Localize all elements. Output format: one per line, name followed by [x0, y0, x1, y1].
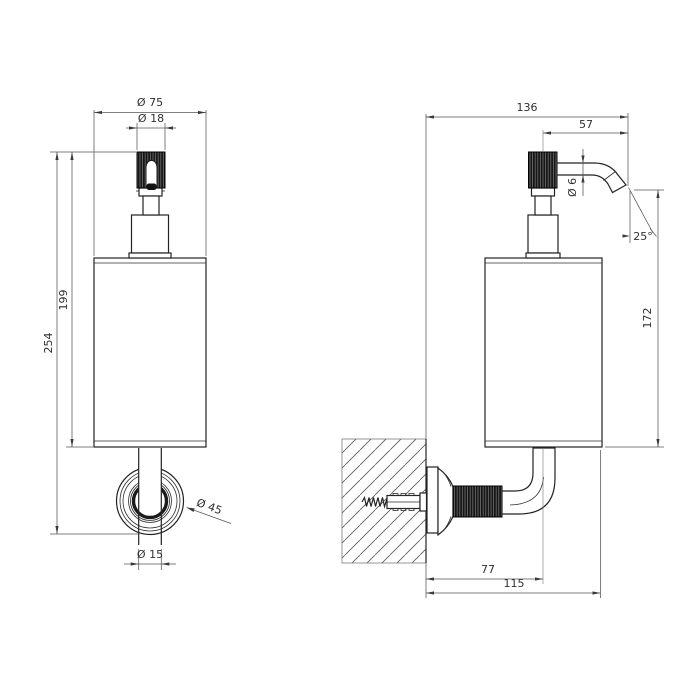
pump-collar-side [528, 215, 558, 253]
side-view: 136 57 Ø 6 25° [342, 101, 664, 598]
pump-neck [143, 196, 159, 215]
dispenser-body-side [485, 258, 602, 447]
dim-height-spout-to-base: 172 [605, 190, 664, 447]
dim-label-spout-projection: 57 [579, 118, 593, 131]
dim-spout-projection: 57 [543, 118, 628, 151]
front-view: Ø 75 Ø 18 254 199 [42, 96, 231, 570]
dim-wall-to-body-front: 115 [426, 450, 601, 598]
technical-drawing: Ø 75 Ø 18 254 199 [0, 0, 700, 700]
dim-label-supply-tube-diameter: Ø 15 [137, 548, 163, 561]
dispenser-body-front [94, 258, 206, 447]
dim-wall-flange-diameter: Ø 45 [187, 496, 232, 523]
dim-body-height: 199 [57, 152, 93, 447]
dim-label-77: 77 [481, 563, 495, 576]
dim-label-body-height: 199 [57, 290, 70, 311]
dim-label-115: 115 [504, 577, 525, 590]
supply-tube-mask [139, 450, 162, 499]
mount-bell [438, 468, 453, 535]
elbow-supply-tube [502, 448, 555, 514]
mount-knurled-ring [453, 486, 502, 517]
spout-outlet [147, 184, 157, 191]
dim-label-body-diameter: Ø 75 [137, 96, 163, 109]
pump-collar-flange-side [526, 253, 560, 258]
drawing-sheet: Ø 75 Ø 18 254 199 [0, 0, 700, 700]
pump-neck-upper-side [532, 188, 555, 196]
pump-neck-side [535, 196, 551, 215]
dim-label-wall-flange-diameter: Ø 45 [195, 496, 224, 517]
dim-pump-knob-diameter: Ø 18 [126, 112, 176, 150]
dim-label-spout-angle: 25° [633, 230, 653, 243]
pump-knob-side [529, 152, 558, 188]
dim-label-height-172: 172 [641, 308, 654, 329]
dim-label-overall-depth: 136 [517, 101, 538, 114]
anchor-flange [420, 493, 427, 511]
dim-label-pump-knob-diameter: Ø 18 [138, 112, 164, 125]
dim-supply-tube-diameter: Ø 15 [124, 548, 176, 570]
dim-label-spout-tube-diameter: Ø 6 [566, 178, 579, 197]
pump-collar-flange [129, 253, 171, 258]
dim-spout-angle: 25° [623, 188, 657, 244]
dim-wall-to-riser-axis: 77 [426, 563, 543, 581]
pump-collar [132, 215, 169, 253]
mount-plate [427, 467, 438, 533]
dim-label-overall-height: 254 [42, 333, 55, 354]
